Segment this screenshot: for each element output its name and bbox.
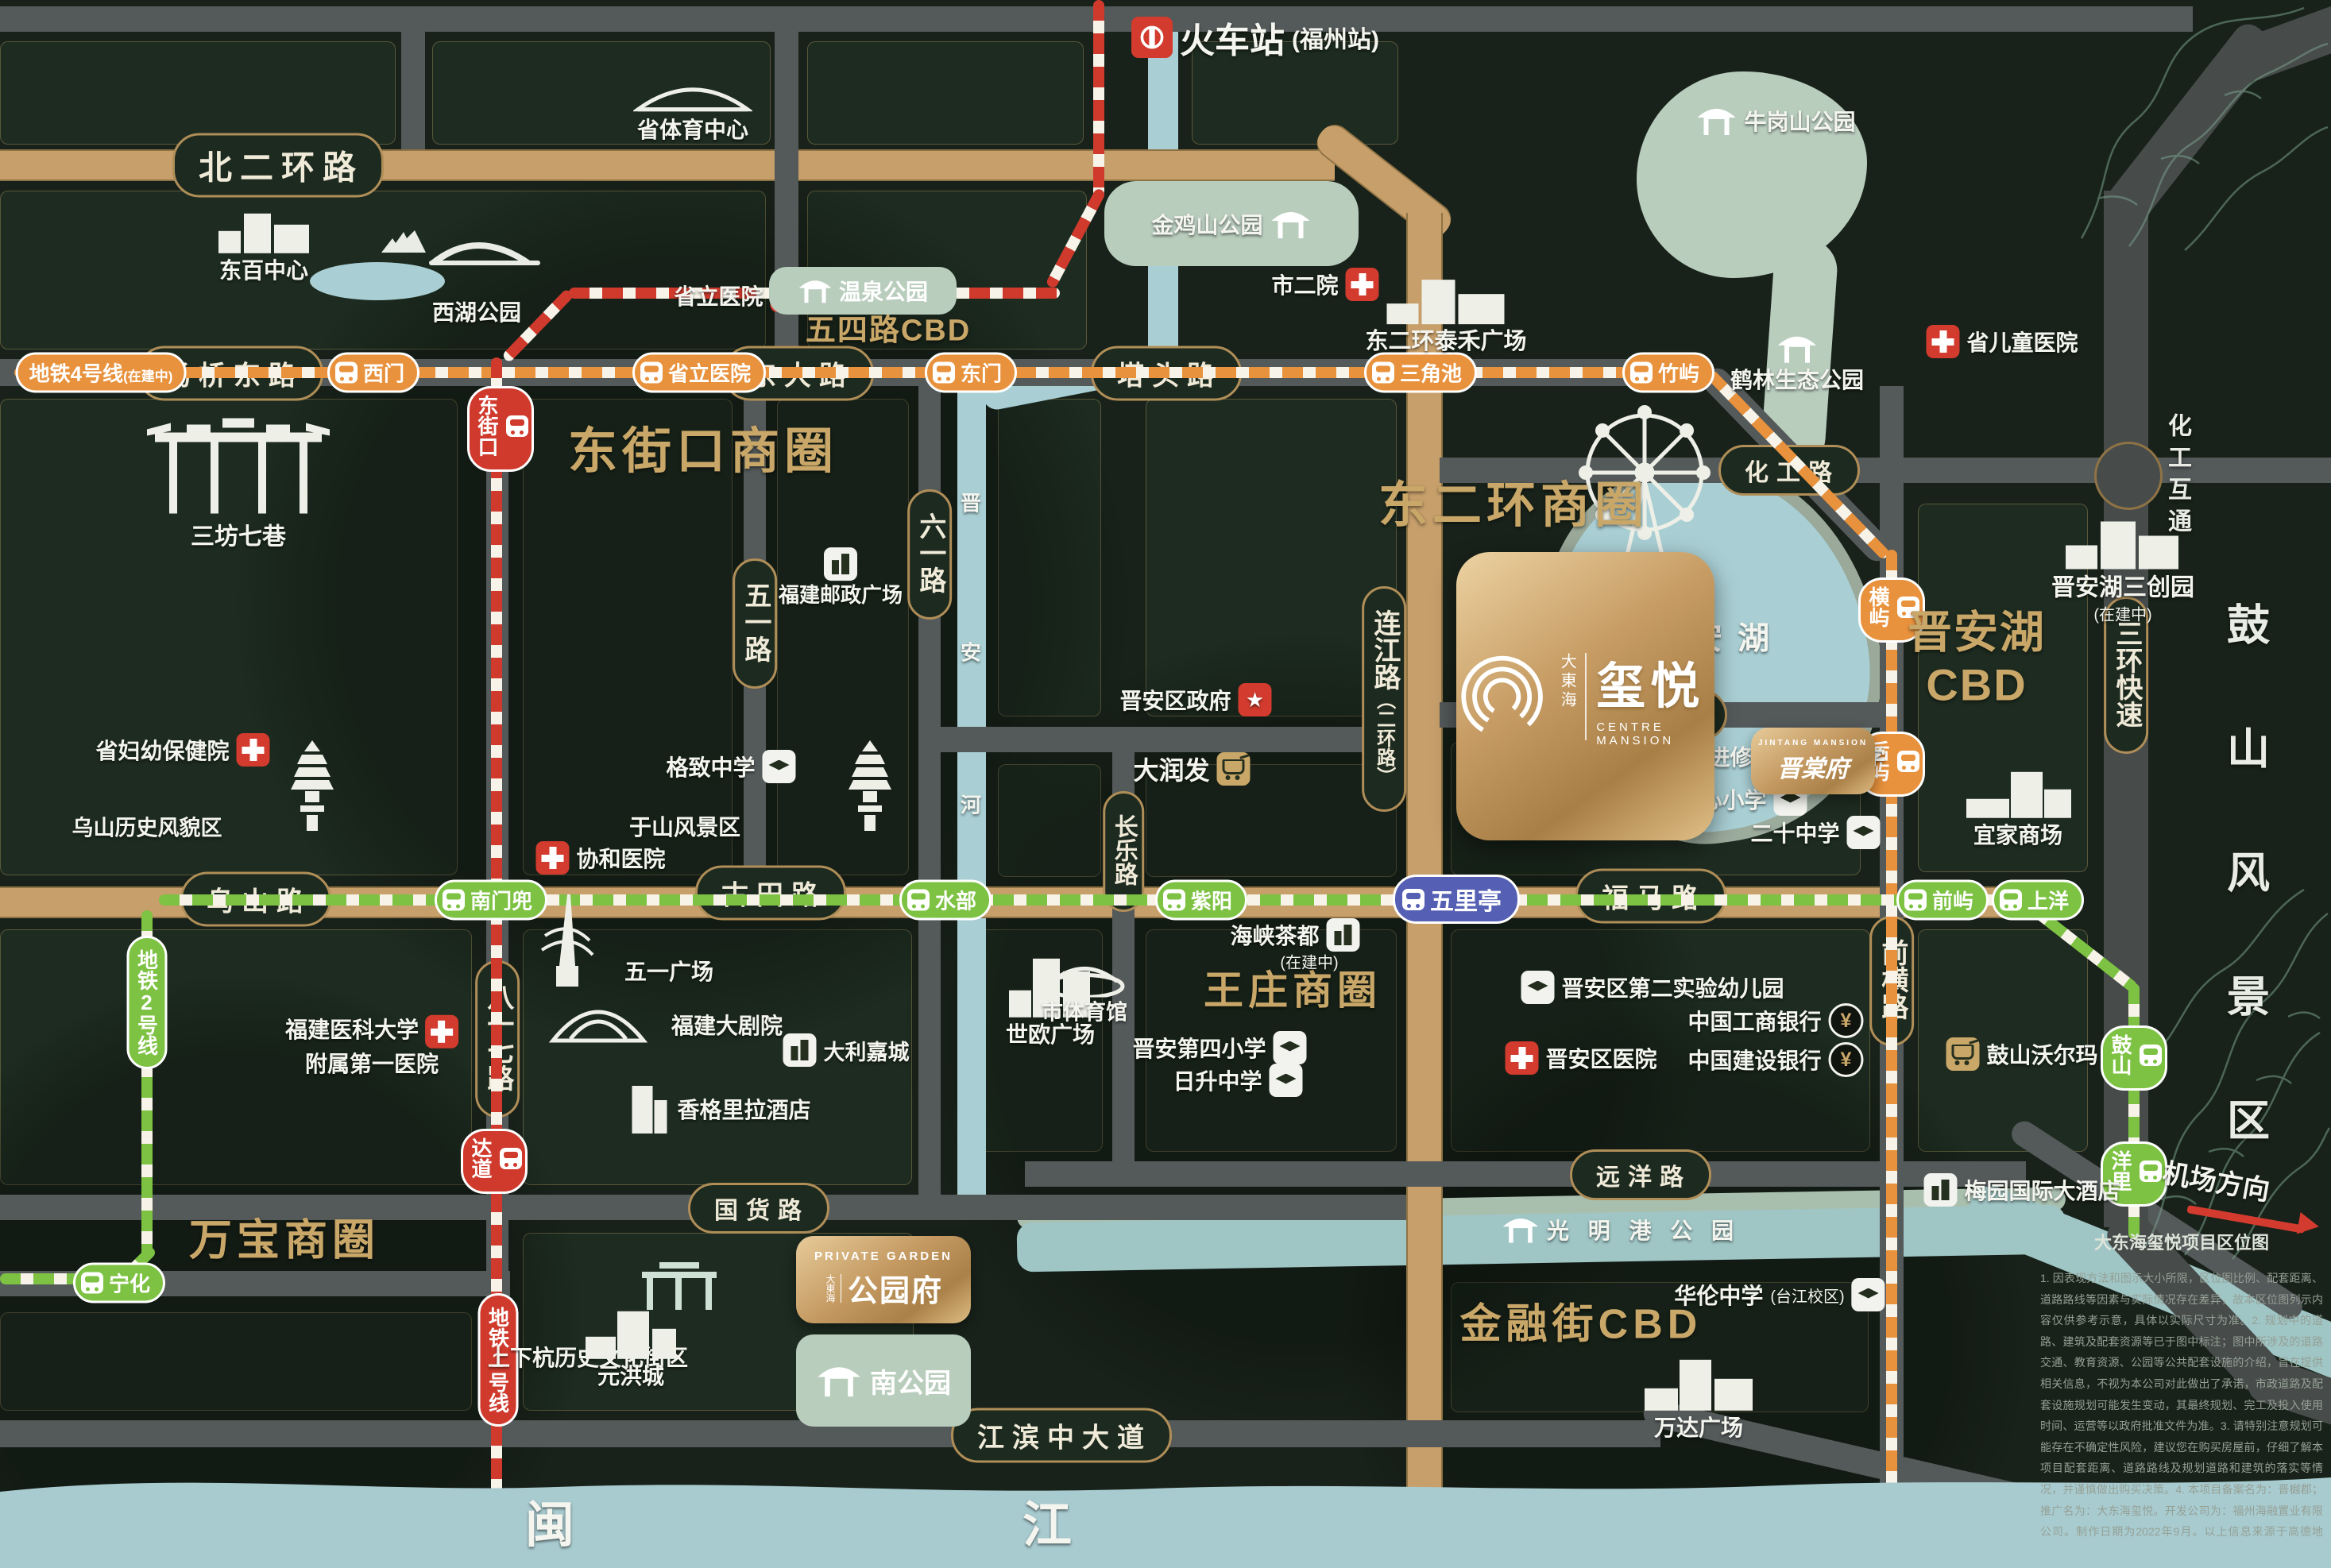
station-wuliting: 五里亭	[1393, 875, 1520, 924]
station-ximen: 西门	[327, 353, 419, 393]
station-zhuyu: 竹屿	[1622, 353, 1714, 393]
district-wanbao: 万宝商圈	[189, 1205, 380, 1268]
poi-risheng: 日升中学	[1173, 1064, 1302, 1097]
poi-guangminggang-park: 光 明 港 公 园	[1502, 1214, 1740, 1246]
school-icon	[1852, 1278, 1885, 1311]
scenic-char: 景	[2227, 962, 2270, 1025]
nan-park-badge: 南公园	[796, 1334, 971, 1427]
train-icon	[1904, 890, 1927, 911]
location-map: 北二环路 杨桥东路 东大路 塔头路 化工路 福新路 乌山路 古田路 福马路 远洋…	[0, 0, 2331, 1568]
road-pill-liuyilu: 六一路	[907, 489, 952, 620]
station-ziyang: 紫阳	[1155, 880, 1247, 921]
building-icon	[2059, 519, 2186, 571]
city-block	[998, 764, 1101, 877]
poi-sports-center: 省体育中心	[633, 81, 752, 145]
project-name-en: CENTRE MANSION	[1596, 720, 1714, 747]
school-icon	[1521, 971, 1554, 1004]
pavilion-icon	[816, 1362, 862, 1399]
pavilion-icon	[798, 277, 833, 304]
metro-line1	[1093, 0, 1104, 197]
poi-yuanhong: 元洪城	[579, 1310, 682, 1391]
poi-disi-xiaoxue: 晋安第四小学	[1132, 1031, 1306, 1064]
station-dongmen: 东门	[925, 353, 1017, 393]
train-icon	[1897, 751, 1919, 772]
city-block	[1146, 399, 1397, 716]
train-icon	[2140, 1045, 2162, 1066]
road-minor	[941, 727, 1406, 752]
school-icon	[1274, 1031, 1307, 1064]
train-icon	[1402, 889, 1424, 910]
train-icon	[2000, 890, 2022, 911]
city-block	[998, 399, 1101, 716]
hotel-icon	[627, 1083, 670, 1135]
mountain-sketch	[2066, 0, 2331, 254]
poi-city-gym: 市体育馆	[1041, 962, 1128, 1026]
poi-yushan: 于山风景区	[629, 810, 740, 842]
poi-niugangshan-park: 牛岗山公园	[1695, 105, 1855, 137]
station-nanmendou: 南门兜	[435, 880, 547, 921]
park-mansion-badge: PRIVATE GARDEN 大東海 公园府	[796, 1236, 971, 1323]
disclaimer-title: 大东海玺悦项目区位图	[2040, 1230, 2323, 1256]
project-badge-xiyue: 大東海 玺悦 CENTRE MANSION	[1456, 552, 1714, 840]
poi-wuyi-square: 五一广场	[624, 955, 713, 987]
poi-grand-theater: 福建大剧院	[671, 1009, 783, 1041]
station-dadao: 达道	[461, 1129, 528, 1194]
road-pill-wuyilu: 五一路	[733, 558, 777, 689]
school-icon	[1270, 1064, 1303, 1097]
niugangshan-park-area	[1637, 71, 1867, 278]
train-icon	[506, 415, 528, 437]
min-river	[0, 1509, 2331, 1568]
hotel-icon	[1923, 1173, 1957, 1207]
poi-eryuan: 市二院	[1271, 268, 1378, 301]
poi-jinan-gov: 晋安区政府	[1119, 683, 1271, 716]
poi-icbc: 中国工商银行	[1687, 1003, 1863, 1038]
building-icon	[824, 547, 857, 581]
station-dongjiekou: 东街口	[467, 386, 534, 472]
cart-icon	[1946, 1037, 1979, 1071]
school-icon	[763, 750, 796, 783]
road-pill-gutian: 古田路	[695, 866, 846, 921]
station-qianyu: 前屿	[1896, 880, 1989, 921]
arch-icon	[636, 1259, 723, 1311]
road-pill-jiangbin: 江滨中大道	[951, 1408, 1172, 1463]
building-icon	[1327, 918, 1360, 952]
theater-dome-icon	[547, 991, 650, 1047]
scenic-char: 鼓	[2227, 590, 2270, 653]
project-name: 玺悦	[1596, 646, 1714, 717]
city-block	[1451, 929, 1870, 1152]
river-char: 晋	[961, 488, 981, 517]
train-icon	[1163, 890, 1185, 911]
poi-chadu: 海峡茶都	[1230, 918, 1359, 952]
station-shengliyiyuan: 省立医院	[632, 353, 766, 393]
scenic-char: 山	[2227, 714, 2270, 777]
bank-icon	[1829, 1042, 1864, 1077]
project-brand: 大東海	[1556, 653, 1587, 740]
gym-dome-icon	[1041, 962, 1128, 997]
min-river-wave	[0, 1460, 2331, 1516]
pagoda-icon	[842, 739, 898, 834]
pagoda-icon	[284, 739, 340, 834]
poi-yijia: 宜家商场	[1958, 770, 2078, 850]
poi-darunfa: 大润发	[1133, 751, 1250, 787]
train-icon	[907, 890, 930, 911]
poi-ccb: 中国建设银行	[1687, 1042, 1863, 1077]
building-icon	[579, 1310, 682, 1361]
building-icon	[1635, 1357, 1762, 1412]
metro-line4	[1886, 550, 1897, 1557]
train-icon	[1630, 362, 1653, 384]
poi-sanfang: 三坊七巷	[139, 401, 338, 553]
district-jinanhu-cbd: 晋安湖	[1908, 597, 2046, 662]
train-icon	[81, 1273, 103, 1294]
poi-gezhi: 格致中学	[666, 750, 795, 783]
poi-shangrila: 香格里拉酒店	[627, 1083, 810, 1135]
hospital-icon	[425, 1015, 458, 1049]
district-jinrongjie: 金融街CBD	[1460, 1291, 1703, 1350]
hospital-icon	[1505, 1041, 1538, 1075]
station-shuibu: 水部	[899, 880, 992, 921]
city-block	[0, 41, 396, 145]
hospital-icon	[1926, 325, 1959, 358]
poi-taihe: 东二环泰禾广场	[1365, 275, 1526, 357]
poi-hualun: 华伦中学(台江校区)	[1674, 1278, 1885, 1311]
pavilion-icon	[1270, 208, 1312, 240]
poi-xihu-park: 西湖公园	[432, 295, 521, 327]
station-ninghua: 宁化	[73, 1263, 165, 1303]
bank-icon	[1829, 1003, 1864, 1038]
line4-badge: 地铁4号线(在建中)	[16, 353, 187, 393]
building-icon	[1958, 770, 2078, 820]
min-river-char: 江	[1022, 1485, 1072, 1556]
min-river-char: 闽	[525, 1485, 574, 1556]
jintang-mansion-badge: JINTANG MANSION 晋棠府	[1751, 728, 1875, 794]
pavilion-icon	[1695, 105, 1737, 137]
poi-wushan-hist: 乌山历史风貌区	[72, 811, 222, 842]
poi-shiyan-youeryuan: 晋安区第二实验幼儿园	[1521, 971, 1784, 1004]
station-gushan: 鼓山	[2101, 1025, 2167, 1091]
wenquan-park-badge: 温泉公园	[769, 267, 957, 315]
poi-sanchuang: 晋安湖三创园 (在建中)	[2051, 519, 2194, 626]
poi-jinan-hospital: 晋安区医院	[1505, 1041, 1656, 1075]
district-dongjiekou: 东街口商圈	[568, 411, 838, 482]
station-sanjiaochi: 三角池	[1364, 353, 1477, 393]
bridge-pavilion-icon	[373, 221, 556, 276]
disclaimer-body: 1. 因表现方法和图示大小所限，区位图比例、配套距离、道路路线等因素与实际情况存…	[2040, 1268, 2323, 1546]
arch-icon	[139, 401, 338, 520]
train-icon	[500, 1148, 522, 1169]
river-char: 河	[961, 790, 981, 819]
poi-walmart: 鼓山沃尔玛	[1946, 1037, 2097, 1071]
pavilion-icon	[1776, 333, 1818, 365]
cart-icon	[1217, 752, 1251, 786]
poi-fuyou: 省妇幼保健院	[95, 733, 269, 767]
poi-meiyuan: 梅园国际大酒店	[1923, 1173, 2120, 1207]
poi-dalijia: 大利嘉城	[783, 1033, 910, 1067]
city-block	[0, 1312, 472, 1411]
building-icon	[1378, 275, 1513, 326]
road-pill-yuanyang: 远洋路	[1570, 1149, 1711, 1200]
poi-yike-hospital: 福建医科大学 附属第一医院	[285, 1015, 458, 1079]
poi-youzheng: 福建邮政广场	[779, 547, 903, 609]
poi-children-hospital: 省儿童医院	[1926, 325, 2078, 358]
road-minor-v	[401, 32, 425, 149]
railway-logo-icon	[1131, 17, 1173, 58]
poi-wanda: 万达广场	[1635, 1357, 1762, 1442]
station-shangyang: 上洋	[1992, 880, 2084, 921]
road-pill-lianjiang: 连江路（二环路）	[1362, 586, 1406, 812]
train-icon	[933, 362, 955, 384]
train-icon	[640, 362, 663, 384]
district-jinanhu-cbd2: CBD	[1926, 659, 2027, 711]
line2-badge: 地铁2号线	[127, 936, 168, 1069]
project-logo-rings	[1456, 637, 1548, 756]
city-block	[807, 41, 1084, 145]
scenic-char: 风	[2227, 838, 2270, 901]
interchange-circle	[2094, 442, 2163, 510]
stadium-icon	[633, 81, 752, 114]
road-pill-guohuo: 国货路	[688, 1183, 829, 1234]
poi-chadu-sub: (在建中)	[1280, 950, 1338, 973]
scenic-char: 区	[2227, 1086, 2270, 1149]
district-dongerhuan: 东二环商圈	[1378, 465, 1649, 536]
road-pill-beierhuan: 北二环路	[172, 133, 384, 198]
school-icon	[1847, 816, 1881, 849]
poi-xiehe: 协和医院	[535, 841, 665, 875]
poi-ershi-zhongxue: 二十中学	[1750, 816, 1880, 849]
poi-train-station: 火车站(福州站)	[1131, 12, 1379, 63]
hospital-icon	[237, 733, 270, 767]
river-char: 安	[961, 637, 981, 666]
train-icon	[443, 890, 465, 911]
pavilion-icon	[1502, 1215, 1540, 1245]
poi-dongbai: 东百中心	[212, 210, 315, 285]
building-icon	[783, 1033, 817, 1067]
star-icon	[1239, 683, 1272, 716]
hospital-icon	[535, 841, 569, 875]
train-icon	[1372, 362, 1394, 384]
train-icon	[2140, 1161, 2162, 1182]
road-yuanyanglu	[1025, 1161, 2026, 1187]
poi-jinjishan-park: 金鸡山公园	[1151, 208, 1311, 240]
poi-helin-park: 鹤林生态公园	[1730, 333, 1864, 395]
building-icon	[212, 210, 315, 255]
train-icon	[335, 362, 358, 384]
